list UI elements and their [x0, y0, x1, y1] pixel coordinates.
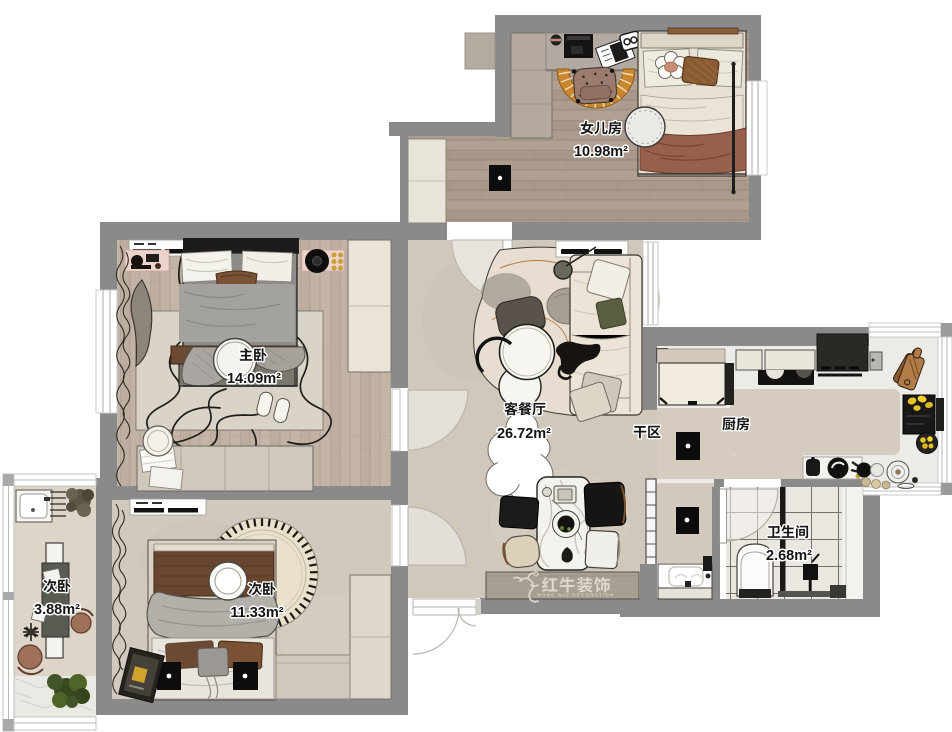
svg-text:11.33m²: 11.33m² [230, 605, 283, 621]
svg-text:3.88m²: 3.88m² [34, 602, 80, 618]
svg-text:HONG NIU DECORATION: HONG NIU DECORATION [537, 593, 614, 598]
svg-text:26.72m²: 26.72m² [497, 426, 551, 442]
svg-text:10.98m²: 10.98m² [574, 144, 628, 160]
svg-text:14.09m²: 14.09m² [227, 371, 281, 387]
svg-text:2.68m²: 2.68m² [766, 548, 812, 564]
